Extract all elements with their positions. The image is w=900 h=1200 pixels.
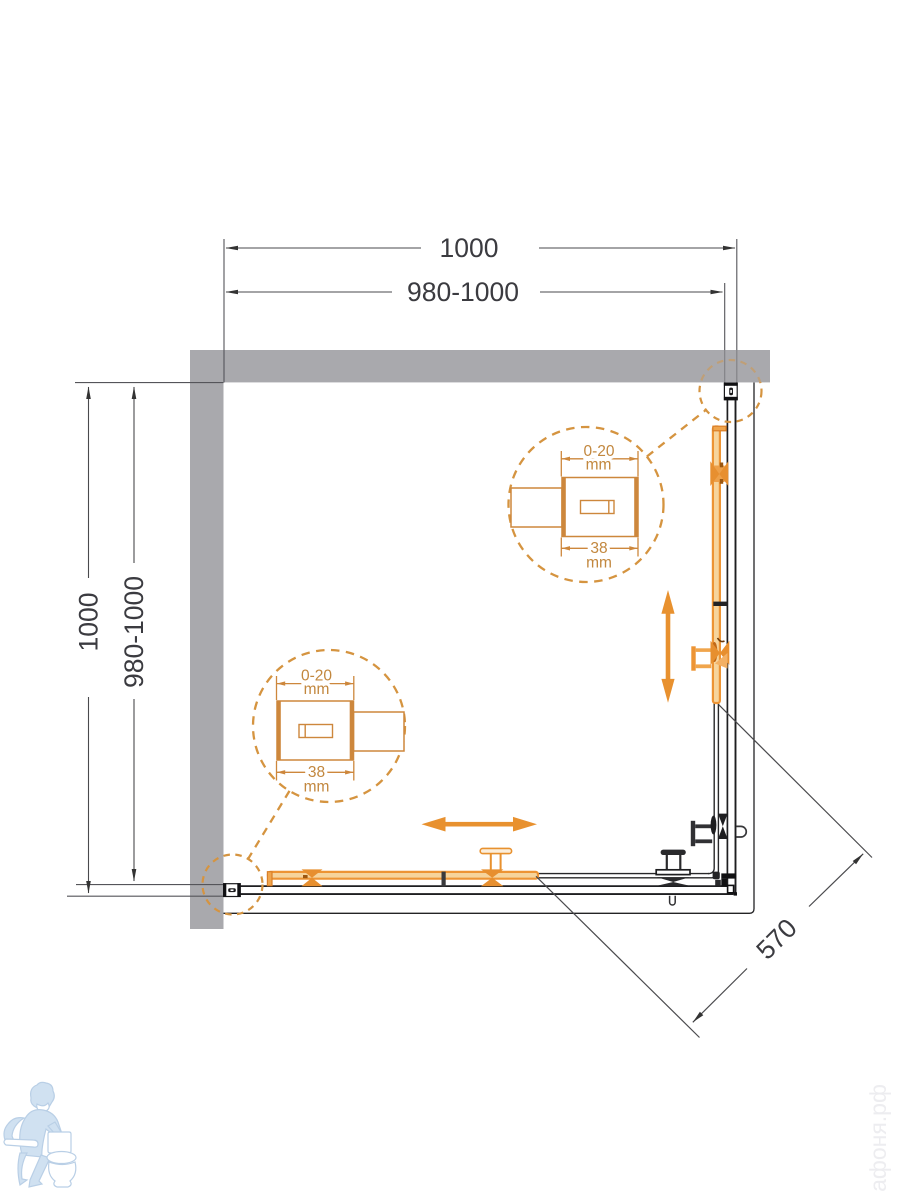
- svg-text:980-1000: 980-1000: [407, 277, 519, 307]
- svg-text:980-1000: 980-1000: [119, 576, 149, 688]
- svg-text:mm: mm: [586, 457, 612, 474]
- svg-text:1000: 1000: [440, 233, 499, 263]
- svg-text:mm: mm: [304, 681, 330, 698]
- svg-text:1000: 1000: [74, 593, 104, 652]
- svg-text:афоня.рф: афоня.рф: [865, 1084, 891, 1192]
- svg-text:mm: mm: [304, 779, 330, 796]
- svg-text:mm: mm: [586, 555, 612, 572]
